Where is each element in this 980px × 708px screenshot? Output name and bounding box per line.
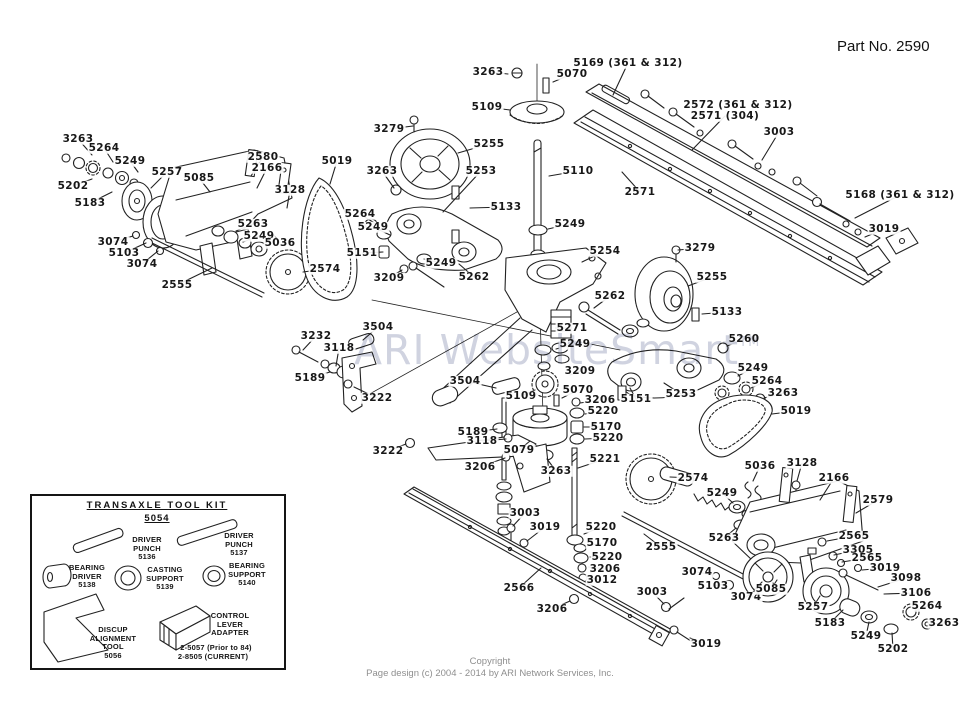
part-number-title: Part No. 2590 [837, 38, 930, 55]
leader-line [866, 622, 869, 636]
leader-line [113, 236, 133, 242]
leader-line [104, 148, 113, 162]
leader-line [513, 513, 525, 526]
leader-line [892, 633, 893, 649]
left-axle-assembly [62, 150, 310, 297]
leader-line [553, 74, 572, 82]
leader-line [855, 195, 900, 218]
leader-line [842, 558, 867, 562]
leader-line [521, 390, 535, 396]
leader-line [578, 459, 605, 468]
leader-line [580, 400, 600, 403]
watermark-text: ARI WebsiteSmart [354, 326, 739, 374]
leader-line [124, 243, 146, 253]
leader-line [549, 171, 578, 176]
bottom-rail-2566 [404, 487, 694, 646]
leader-line [931, 623, 944, 624]
leader-line [90, 192, 112, 203]
leader-line [480, 458, 505, 467]
leader-line [177, 268, 212, 285]
belt-right [699, 395, 772, 457]
leader-line [587, 543, 602, 546]
carrier-5253-left [365, 186, 502, 287]
parts-diagram-page: TRANSAXLE TOOL KIT 5054 3263526452495202… [0, 0, 980, 708]
watermark-tm: TM [739, 335, 760, 350]
leader-line [702, 312, 727, 314]
leader-line [330, 161, 337, 184]
leader-line [753, 466, 760, 481]
leader-line [552, 601, 570, 609]
leader-line [487, 107, 510, 110]
leader-line [78, 139, 92, 155]
leader-line [389, 126, 413, 129]
leader-line [722, 493, 733, 503]
leader-line [273, 234, 280, 243]
frame-rail-group [574, 84, 918, 285]
leader-line [772, 411, 796, 414]
leader-line [751, 381, 767, 388]
leader-line [690, 638, 706, 644]
leader-line [764, 393, 783, 398]
leader-line [488, 72, 508, 74]
leader-line [389, 270, 402, 278]
leader-line [519, 568, 541, 588]
leader-line [585, 411, 603, 414]
leader-line [590, 578, 602, 580]
leader-line [797, 463, 802, 481]
leader-line [73, 179, 92, 186]
leader-line [584, 527, 601, 534]
leader-line [644, 534, 661, 547]
toolkit-subtitle: 5054 [144, 513, 169, 524]
copyright-footer: Copyright Page design (c) 2004 - 2014 by… [0, 656, 980, 680]
disc-5255-right [622, 246, 699, 337]
leader-line [697, 572, 713, 575]
leader-line [678, 248, 700, 250]
leader-line [884, 593, 916, 594]
leader-line [762, 132, 779, 160]
leader-line [652, 592, 664, 604]
leader-line [585, 438, 608, 439]
leader-line [388, 444, 406, 451]
leader-line [303, 336, 316, 350]
leader-line [142, 251, 158, 264]
leader-line [878, 578, 906, 587]
leader-line [465, 381, 496, 388]
leader-line [594, 296, 610, 308]
leader-line [562, 390, 578, 398]
leader-line [310, 372, 330, 378]
leader-line [151, 172, 167, 188]
leader-line [527, 527, 545, 541]
leader-line [862, 568, 885, 570]
leader-line [470, 207, 506, 208]
leader-line [834, 550, 858, 555]
leader-line [130, 161, 138, 172]
leader-line [622, 172, 640, 192]
toolkit-title: TRANSAXLE TOOL KIT [87, 500, 228, 511]
belt-left [301, 178, 357, 300]
leader-line [589, 567, 605, 569]
copyright-line1: Copyright [0, 656, 980, 668]
leader-line [613, 63, 628, 95]
copyright-line2: Page design (c) 2004 - 2014 by ARI Netwo… [0, 668, 980, 680]
leader-line [548, 224, 570, 229]
watermark: ARI WebsiteSmartTM [354, 326, 760, 374]
